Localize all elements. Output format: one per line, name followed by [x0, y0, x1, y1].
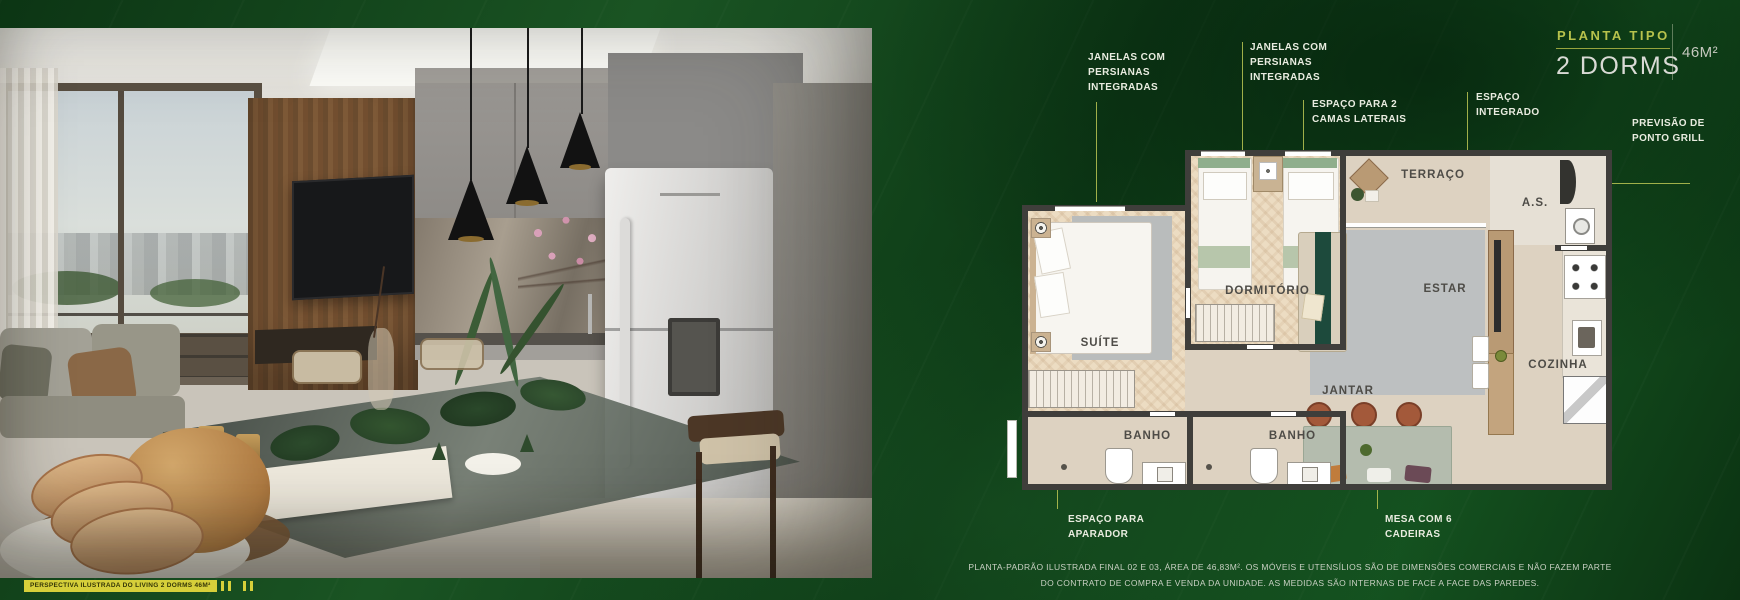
wall — [1340, 417, 1346, 484]
suite-wardrobe — [1028, 370, 1135, 408]
door-gap-banho2 — [1271, 412, 1296, 416]
bed-pillow — [1288, 172, 1334, 200]
wall — [1185, 150, 1612, 156]
plan-type-eyebrow: PLANTA TIPO — [1557, 28, 1670, 43]
lamp-cord — [527, 28, 529, 148]
window-dormitorio — [1285, 151, 1331, 156]
lamp-glow — [569, 164, 591, 170]
basin — [1302, 467, 1318, 482]
stove — [1564, 255, 1606, 299]
chair-leg — [770, 446, 776, 578]
wall — [1022, 484, 1612, 490]
callout-grill: PREVISÃO DE PONTO GRILL — [1632, 116, 1710, 146]
bed-bolster — [1198, 158, 1250, 168]
photo-caption-label: PERSPECTIVA ILUSTRADA DO LIVING 2 DORMS … — [24, 580, 217, 592]
sofa-seat — [0, 396, 185, 438]
caption-tick — [228, 581, 231, 591]
lamp-glow — [458, 236, 484, 242]
dining-chair-plan — [1351, 402, 1377, 428]
caption-tick — [221, 581, 224, 591]
callout-side-beds: ESPAÇO PARA 2 CAMAS LATERAIS — [1312, 97, 1430, 127]
room-label-banho1: BANHO — [1090, 430, 1205, 442]
kitchen-floor — [540, 498, 872, 578]
wall — [1022, 205, 1028, 490]
toilet — [1250, 448, 1278, 484]
tv — [292, 175, 414, 300]
room-label-cozinha: COZINHA — [1513, 359, 1603, 371]
tv-plan — [1494, 240, 1501, 332]
wall — [1185, 150, 1191, 350]
callout-sideboard: ESPAÇO PARA APARADOR — [1068, 512, 1168, 542]
terrace-glass-door — [1346, 223, 1486, 228]
door-gap-dormitorio — [1247, 345, 1273, 349]
sink-basin — [1578, 327, 1595, 348]
wall — [1187, 417, 1193, 484]
leader-line — [1303, 100, 1304, 150]
entry-door-leaf — [1007, 420, 1017, 478]
nightstand-top — [1259, 162, 1277, 180]
basin — [1157, 467, 1173, 482]
suite-pillow — [1034, 272, 1070, 318]
room-label-jantar: JANTAR — [1298, 385, 1398, 397]
sofa-pillow-plan — [1301, 293, 1324, 322]
glass-vase — [368, 328, 394, 410]
caption-tick — [243, 581, 246, 591]
room-label-suite: SUÍTE — [1055, 337, 1145, 349]
side-panel — [773, 83, 872, 513]
white-bowl — [465, 453, 521, 475]
window-mullion — [118, 91, 124, 333]
leader-line — [1242, 42, 1243, 150]
stool — [1472, 336, 1489, 362]
room-label-estar: ESTAR — [1400, 283, 1490, 295]
shower-head — [1206, 464, 1212, 470]
water-dispenser — [668, 318, 720, 396]
table-centerpiece — [1360, 444, 1372, 456]
dining-chair-back — [420, 338, 484, 370]
terrace-cushion — [1365, 190, 1379, 202]
disclaimer-line-2: DO CONTRATO DE COMPRA E VENDA DA UNIDADE… — [940, 578, 1640, 588]
kitchen-sink — [1572, 320, 1602, 356]
fridge-plan — [1563, 376, 1608, 424]
lamp-cord — [470, 28, 472, 180]
washer-drum — [1573, 218, 1590, 235]
stool — [1472, 363, 1489, 389]
window-suite — [1055, 206, 1125, 211]
wall — [1022, 411, 1346, 417]
wall — [1340, 150, 1346, 350]
seat-pillow — [1404, 465, 1432, 484]
callout-integrated-space: ESPAÇO INTEGRADO — [1476, 90, 1556, 120]
dining-chair-plan — [1396, 402, 1422, 428]
dormitorio-wardrobe — [1195, 304, 1275, 342]
seat-pillow — [1367, 468, 1391, 482]
room-label-dormitorio: DORMITÓRIO — [1190, 285, 1345, 297]
disclaimer-line-1: PLANTA-PADRÃO ILUSTRADA FINAL 02 E 03, Á… — [940, 562, 1640, 572]
door-gap-service — [1561, 246, 1587, 250]
ceiling-light-icon — [1031, 218, 1051, 238]
chair-leg — [696, 452, 702, 578]
bed-bolster — [1283, 158, 1337, 168]
callout-windows-left: JANELAS COM PERSIANAS INTEGRADAS — [1088, 50, 1174, 95]
bed-pillow — [1203, 172, 1247, 200]
ceiling-light-icon — [1031, 332, 1051, 352]
bathroom-sink — [1287, 462, 1331, 486]
plan-title: 2 DORMS — [1556, 52, 1680, 81]
room-label-banho2: BANHO — [1235, 430, 1350, 442]
lamp-cord — [581, 28, 583, 114]
photo-caption: PERSPECTIVA ILUSTRADA DO LIVING 2 DORMS … — [24, 580, 253, 592]
wall — [1606, 150, 1612, 490]
terrace-plant — [1351, 188, 1364, 201]
grill-point — [1560, 160, 1576, 204]
island-counter — [1488, 353, 1514, 435]
header-divider — [1672, 24, 1673, 80]
bed-blanket — [1198, 246, 1250, 268]
counter-plant — [1495, 350, 1507, 362]
plan-area: 46M² — [1682, 44, 1718, 61]
callout-table: MESA COM 6 CADEIRAS — [1385, 512, 1485, 542]
eyebrow-underline — [1556, 48, 1670, 49]
window-dormitorio — [1201, 151, 1245, 156]
chair-cushion — [699, 433, 781, 465]
lamp-glow — [515, 200, 539, 206]
caption-tick-gap — [235, 581, 239, 591]
room-label-terraco: TERRAÇO — [1368, 169, 1498, 181]
toilet — [1105, 448, 1133, 484]
fridge-logo — [660, 193, 720, 196]
caption-tick — [250, 581, 253, 591]
door-gap-banho1 — [1150, 412, 1175, 416]
room-label-as: A.S. — [1510, 197, 1560, 209]
floor-plan: SUÍTE DORMITÓRIO TERRAÇO A.S. ESTAR COZI… — [1015, 148, 1613, 490]
bathroom-sink — [1142, 462, 1186, 486]
tv-panel-plan — [1488, 230, 1514, 355]
living-room-render — [0, 28, 872, 578]
washing-machine — [1565, 208, 1595, 244]
shower-head — [1061, 464, 1067, 470]
disclaimer: PLANTA-PADRÃO ILUSTRADA FINAL 02 E 03, Á… — [940, 562, 1640, 588]
callout-windows-mid: JANELAS COM PERSIANAS INTEGRADAS — [1250, 40, 1336, 85]
dining-chair-back — [292, 350, 362, 384]
